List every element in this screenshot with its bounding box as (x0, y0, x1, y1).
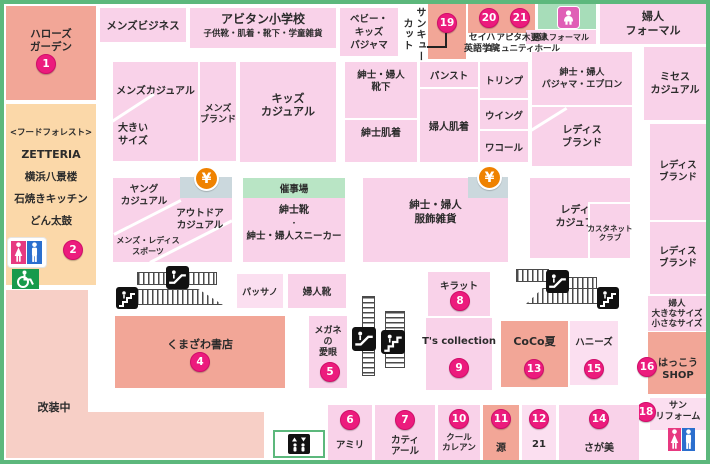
badge-8: 8 (450, 291, 470, 311)
outdoor-casual-label-label: アウトドア (176, 208, 224, 220)
womens-underwear: 婦人肌着 (420, 89, 478, 162)
womens-underwear-label: 婦人肌着 (429, 118, 469, 133)
baby-kids-pajama-label: パジャマ (350, 39, 388, 52)
stairs-steps (516, 269, 549, 282)
wheelchair-icon (12, 269, 39, 289)
kids-casual-label: カジュアル (261, 105, 315, 118)
restroom-female-icon (668, 428, 681, 451)
fujin-sizes: 婦人大きなサイズ小さなサイズ (648, 296, 706, 331)
shoes-sneaker-label: ・ (291, 217, 298, 230)
cool-carean: クールカレアン10 (438, 405, 480, 460)
badge-16: 16 (637, 357, 657, 377)
food-forest-label: ZETTERIA (21, 144, 80, 166)
stairs-steps (131, 289, 223, 305)
mens-casual-label: メンズカジュアル (116, 82, 195, 97)
mrs-casual-label: ミセス (660, 71, 690, 84)
castanet-club: カスタネットクラブ (588, 202, 630, 258)
hellos-garden-label: ハローズ (30, 28, 71, 41)
badge-13: 13 (524, 359, 544, 379)
katy-earl-label: カティ (391, 435, 419, 446)
passano-label: パッサノ (242, 285, 278, 298)
shoes-sneaker-label: 紳士・婦人スニーカー (246, 230, 341, 243)
mens-underwear-label: 紳士肌着 (361, 124, 401, 139)
mens-brand: メンズブランド (200, 62, 236, 161)
pajama-apron-label: 紳士・婦人 (559, 67, 604, 79)
escalator-icon (352, 327, 376, 351)
sagami: さが美14 (559, 405, 639, 460)
thankyou-cut-label: サンキューカット (399, 5, 426, 63)
baby-kids-pajama-label: ベビー・ (350, 13, 388, 26)
wing: ウイング (480, 100, 528, 129)
katy-earl: カティアール7 (375, 405, 435, 460)
socks-label: 紳士・婦人 (357, 70, 405, 82)
hakko-shop-label: SHOP (662, 370, 693, 382)
shoes-sneaker: 紳士靴・紳士・婦人スニーカー (243, 198, 345, 262)
sun-reform-label: サン (669, 401, 687, 412)
yen-symbol: ¥ (485, 170, 495, 186)
stairs-icon (597, 287, 619, 309)
abitan-school-label: 子供靴・肌着・靴下・学童雑貨 (203, 27, 322, 42)
young-casual-label-label: ヤング (130, 184, 159, 196)
badge-12: 12 (529, 409, 549, 429)
badge-19-leader-line (427, 46, 447, 48)
badge-21: 21 (510, 8, 530, 28)
ladies-brand-right-upper: レディスブランド (650, 124, 706, 220)
badge-4: 4 (190, 352, 210, 372)
fujin-kutsu-label: 婦人靴 (303, 284, 332, 298)
badge-19: 19 (437, 13, 457, 33)
badge-10: 10 (449, 409, 469, 429)
fujin-kutsu: 婦人靴 (288, 274, 346, 308)
mens-business-label: メンズビジネス (106, 18, 179, 33)
apita-hall-label: アピタ木更津コミュニティホール (484, 32, 560, 56)
outdoor-casual-label-label: カジュアル (177, 220, 224, 232)
ladies-brand-right-upper-label: ブランド (659, 172, 697, 184)
fujin-formal-big-label: フォーマル (626, 24, 681, 38)
honeys-label: ハニーズ (575, 334, 613, 348)
baby-room-icon (557, 6, 580, 29)
yen-symbol: ¥ (202, 171, 212, 187)
abitan-school-label: アビタン小学校 (221, 12, 305, 27)
fujin-formal-big: 婦人フォーマル (600, 4, 706, 44)
escalator-icon (166, 266, 189, 289)
sports-label: メンズ・レディススポーツ (112, 233, 184, 259)
triumph-label: トリンプ (485, 73, 523, 87)
badge-15: 15 (584, 359, 604, 379)
accessories-label: 紳士・婦人 (409, 198, 462, 212)
amiri-label: アミリ (336, 437, 364, 451)
thankyou-cut-label-label: カット (400, 5, 413, 63)
triumph: トリンプ (480, 62, 528, 98)
ladies-brand-right-lower-label: ブランド (659, 258, 697, 270)
socks: 紳士・婦人靴下 (345, 62, 417, 118)
badge-18: 18 (636, 402, 656, 422)
badge-6: 6 (340, 410, 360, 430)
megane-aigan: メガネの愛眼5 (309, 316, 347, 388)
megane-aigan-label: の (323, 337, 332, 348)
katy-earl-label: アール (391, 446, 419, 457)
mrs-casual-label: カジュアル (651, 84, 700, 97)
panst: パンスト (420, 62, 478, 87)
panst-label: パンスト (430, 68, 468, 82)
apita-hall-label-label: コミュニティホール (484, 44, 560, 55)
badge-11: 11 (491, 409, 511, 429)
atm-yen-icon: ¥ (194, 166, 219, 191)
stairs-icon (116, 287, 138, 309)
event-hall-label: 催事場 (280, 181, 309, 195)
renovation-label: 改装中 (22, 399, 86, 414)
ladies-brand-center-label: ブランド (562, 137, 602, 150)
badge-7: 7 (395, 410, 415, 430)
coco-natsu-label: CoCo夏 (513, 333, 555, 349)
floor-map: ハローズガーデン1<フードフォレスト>ZETTERIA横浜八景楼石焼きキッチンど… (0, 0, 710, 464)
twenty-one-label: 21 (532, 439, 546, 450)
kids-casual: キッズカジュアル (240, 62, 336, 162)
megane-aigan-label: メガネ (314, 326, 341, 337)
restroom-male-icon (682, 428, 695, 451)
mrs-casual: ミセスカジュアル (644, 47, 706, 120)
fujin-formal-big-label: 婦人 (642, 10, 664, 24)
renovation-label-label: 改装中 (38, 399, 71, 415)
food-forest-label: 石焼きキッチン (14, 188, 88, 210)
castanet-club-label: クラブ (599, 233, 622, 242)
honeys: ハニーズ15 (570, 321, 618, 385)
ladies-brand-right-lower-label: レディス (659, 246, 696, 258)
amiri: アミリ6 (328, 405, 372, 460)
sagami-label: さが美 (584, 439, 614, 454)
restroom-male-icon (27, 241, 42, 264)
badge-19-leader-line (445, 33, 447, 47)
thankyou-cut-label-label: サンキュー (413, 5, 426, 63)
fujin-sizes-label: 小さなサイズ (652, 319, 703, 329)
shop-21: 21 (504, 4, 535, 33)
wing-label: ウイング (485, 108, 523, 122)
kirat: キラット8 (428, 272, 490, 316)
castanet-club-label: カスタネット (588, 224, 633, 233)
outdoor-casual-label: アウトドアカジュアル (168, 206, 232, 234)
mens-brand-label: ブランド (200, 115, 236, 126)
pajama-apron-label: パジャマ・エプロン (542, 79, 623, 91)
large-size-label-label: 大きい (118, 122, 148, 135)
kumazawa-books: くまざわ書店4 (115, 316, 285, 388)
sports-label-label: スポーツ (132, 246, 164, 257)
abitan-school: アビタン小学校子供靴・肌着・靴下・学童雑貨 (190, 8, 336, 48)
mens-brand-label: メンズ (205, 104, 232, 115)
hakko-shop: はっこうSHOP16 (648, 332, 708, 394)
large-size-label-label: サイズ (118, 135, 148, 148)
shoes-sneaker-label: 紳士靴 (279, 204, 309, 217)
young-casual-label-label: カジュアル (121, 196, 168, 208)
badge-9: 9 (449, 358, 469, 378)
apita-hall-label-label: アピタ木更津 (496, 33, 547, 44)
stairs-steps (566, 277, 597, 289)
event-hall: 催事場 (243, 178, 345, 198)
megane-aigan-label: 愛眼 (319, 348, 337, 359)
large-size-label: 大きいサイズ (114, 120, 152, 150)
hellos-garden-label: ガーデン (30, 41, 72, 54)
wacoal: ワコール (480, 131, 528, 162)
sun-reform-label: リフォーム (656, 412, 701, 423)
baby-kids-pajama-label: キッズ (355, 26, 384, 39)
hakko-shop-label: はっこう (658, 358, 698, 370)
food-forest-label: <フードフォレスト> (10, 122, 92, 144)
minamoto-label: 源 (496, 439, 506, 454)
ts-collection-label: T's collection (422, 336, 496, 347)
sun-reform: サンリフォーム18 (650, 398, 706, 430)
badge-5: 5 (320, 362, 340, 382)
sports-label-label: メンズ・レディス (116, 235, 179, 246)
young-casual-label: ヤングカジュアル (114, 182, 174, 210)
socks-label: 靴下 (371, 82, 390, 94)
pajama-apron: 紳士・婦人パジャマ・エプロン (532, 52, 632, 105)
wacoal-label: ワコール (485, 140, 523, 154)
badge-2: 2 (63, 240, 83, 260)
fujin-sizes-label: 婦人 (668, 299, 685, 309)
stairs-icon (381, 330, 405, 354)
hellos-garden: ハローズガーデン1 (6, 6, 96, 100)
escalator-icon (546, 270, 569, 293)
minamoto: 源11 (483, 405, 519, 460)
ts-collection: T's collection9 (426, 318, 492, 390)
food-forest-label: どん太鼓 (30, 210, 72, 232)
cool-carean-label: カレアン (442, 443, 476, 453)
ladies-brand-right-lower: レディスブランド (650, 222, 706, 294)
coco-natsu: CoCo夏13 (501, 321, 568, 387)
passano: パッサノ (237, 274, 283, 308)
baby-kids-pajama: ベビー・キッズパジャマ (340, 8, 398, 56)
mens-underwear: 紳士肌着 (345, 120, 417, 162)
mens-business: メンズビジネス (100, 8, 186, 42)
badge-20: 20 (479, 8, 499, 28)
cool-carean-label: クール (446, 433, 472, 443)
badge-14: 14 (589, 409, 609, 429)
kumazawa-books-label: くまざわ書店 (167, 336, 233, 352)
restroom-female-icon (11, 241, 26, 264)
renovation-b (6, 412, 264, 458)
twenty-one: 2112 (522, 405, 556, 460)
ladies-brand-center: レディスブランド (532, 107, 632, 166)
fujin-sizes-label: 大きなサイズ (652, 309, 703, 319)
atm-yen-icon: ¥ (477, 165, 502, 190)
badge-1: 1 (36, 54, 56, 74)
accessories-label: 服飾雑貨 (415, 212, 457, 226)
kirat-label: キラット (440, 278, 478, 292)
kids-casual-label: キッズ (272, 92, 305, 105)
ladies-brand-right-upper-label: レディス (659, 160, 696, 172)
elevator-icon (288, 434, 310, 454)
food-forest-label: 横浜八景楼 (25, 166, 78, 188)
ladies-brand-center-label: レディス (562, 124, 601, 137)
